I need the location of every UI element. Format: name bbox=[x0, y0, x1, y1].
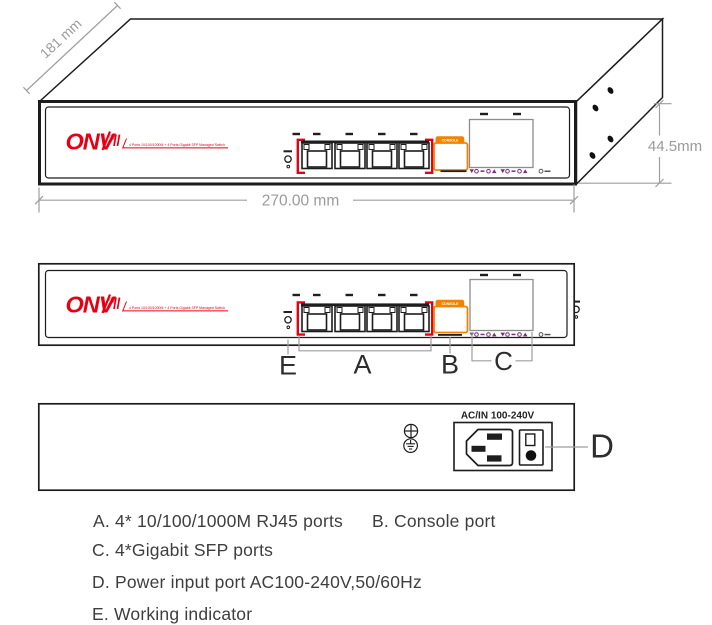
callout-letter-b: B bbox=[441, 350, 459, 380]
power-switch-icon bbox=[520, 430, 544, 465]
legend-item-e: E. Working indicator bbox=[92, 604, 252, 624]
screw-icon bbox=[404, 424, 417, 437]
chassis-top-face bbox=[40, 19, 663, 102]
legend-item-b: B. Console port bbox=[372, 511, 496, 531]
dim-width-label: 270.00 mm bbox=[262, 193, 340, 210]
power-inlet-module bbox=[454, 423, 552, 471]
rear-view: AC/IN 100-240V D bbox=[39, 404, 614, 490]
legend: A. 4* 10/100/1000M RJ45 ports B. Console… bbox=[92, 511, 496, 624]
legend-item-a: A. 4* 10/100/1000M RJ45 ports bbox=[93, 511, 343, 531]
console-port: CONSOLE bbox=[434, 300, 468, 336]
console-label: CONSOLE bbox=[442, 302, 460, 306]
brand-tagline: 4 Ports 10/100/1000M + 4 Ports Gigabit S… bbox=[129, 306, 225, 310]
rj45-port bbox=[367, 143, 397, 169]
rj45-port bbox=[399, 306, 429, 332]
rj45-port bbox=[367, 306, 397, 332]
console-label: CONSOLE bbox=[442, 138, 460, 142]
legend-item-d: D. Power input port AC100-240V,50/60Hz bbox=[92, 572, 422, 592]
rj45-port bbox=[335, 143, 365, 169]
rj45-port-block bbox=[298, 140, 432, 173]
callout-letter-a: A bbox=[353, 350, 371, 380]
power-input-label: AC/IN 100-240V bbox=[461, 411, 535, 422]
dim-height-label: 44.5mm bbox=[648, 138, 702, 155]
switch-dimension-diagram: ONV ® 4 Ports 10/100/1000M + 4 Ports Gig… bbox=[0, 0, 712, 625]
rj45-port bbox=[335, 306, 365, 332]
console-port: CONSOLE bbox=[434, 136, 468, 172]
dim-width: 270.00 mm bbox=[35, 185, 578, 213]
legend-item-c: C. 4*Gigabit SFP ports bbox=[92, 540, 273, 560]
callout-letter-e: E bbox=[279, 351, 297, 381]
front-view: ONV ® 4 Ports 10/100/1000M + 4 Ports Gig… bbox=[39, 264, 574, 381]
callout-letter-d: D bbox=[590, 428, 614, 465]
dim-depth-label: 181 mm bbox=[37, 15, 85, 61]
callout-letter-c: C bbox=[494, 346, 513, 376]
brand-tagline: 4 Ports 10/100/1000M + 4 Ports Gigabit S… bbox=[129, 143, 225, 147]
rj45-port bbox=[399, 143, 429, 169]
rj45-port bbox=[302, 306, 332, 332]
rj45-port-block bbox=[298, 302, 432, 334]
rj45-port bbox=[302, 143, 332, 169]
diagram-canvas: ONV ® 4 Ports 10/100/1000M + 4 Ports Gig… bbox=[0, 0, 712, 625]
